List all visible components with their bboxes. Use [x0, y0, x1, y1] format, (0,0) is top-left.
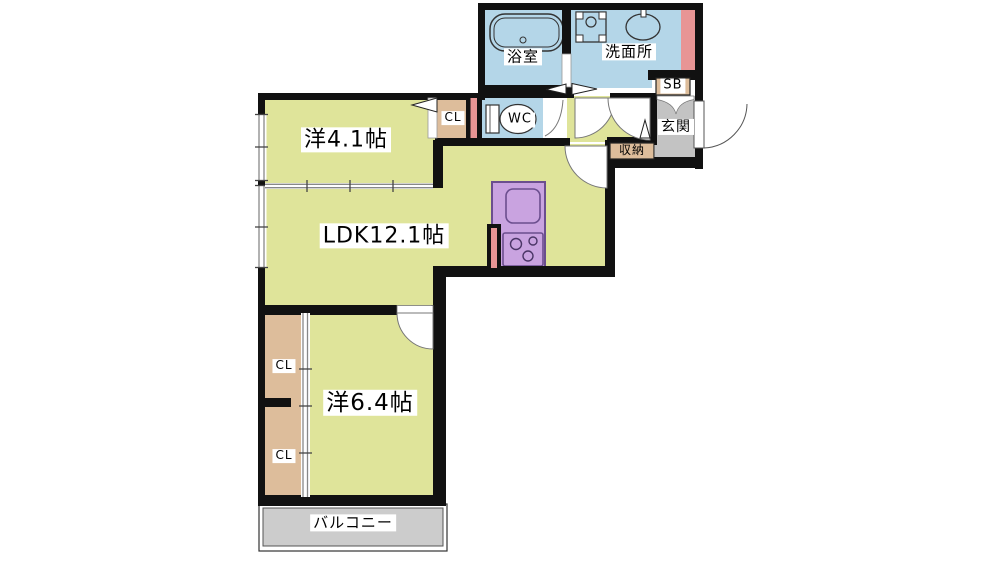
- room-label-storage: 収納: [618, 144, 646, 158]
- wall: [478, 3, 703, 10]
- room-label-closet-upper: CL: [272, 359, 295, 373]
- pipe-space-strip: [681, 8, 696, 78]
- room-label-ldk: LDK12.1帖: [320, 223, 449, 248]
- washer-pan-corner: [576, 35, 583, 42]
- floorplan-drawing: [0, 0, 1000, 562]
- sink-faucet-icon: [641, 9, 646, 17]
- room-label-bedroom2: 洋6.4帖: [323, 390, 417, 416]
- wall: [258, 93, 485, 100]
- wc-door-nook: [543, 96, 567, 140]
- wall: [562, 8, 571, 56]
- bath-door: [562, 54, 571, 87]
- wall: [258, 305, 265, 505]
- wall: [478, 3, 485, 98]
- room-label-bedroom1: 洋4.1帖: [301, 127, 391, 152]
- wall: [435, 138, 570, 146]
- room-label-shoe-box: SB: [660, 79, 685, 94]
- wall: [433, 266, 615, 277]
- entrance-door-leaf: [694, 101, 704, 148]
- room-label-entrance: 玄関: [658, 119, 694, 135]
- room-label-wc: WC: [505, 113, 535, 128]
- bedroom2-door-leaf: [397, 306, 433, 314]
- toilet-tank-icon: [486, 105, 499, 133]
- room-label-washroom: 洗面所: [602, 43, 656, 60]
- room-label-bathroom: 浴室: [504, 48, 542, 65]
- floorplan-canvas: 浴室 洗面所 WC CL SB 玄関 収納 洋4.1帖 LDK12.1帖 洋6.…: [0, 0, 1000, 562]
- washer-pan-corner: [576, 12, 583, 19]
- washer-pan-corner: [599, 35, 606, 42]
- washer-pan-corner: [599, 12, 606, 19]
- wall: [258, 495, 446, 506]
- wall-closet-stub: [265, 398, 291, 407]
- pipe-strip-wc: [471, 98, 478, 138]
- room-label-closet-lower: CL: [272, 449, 295, 463]
- room-label-closet-bedroom1: CL: [441, 111, 464, 125]
- pipe-strip-kitchen: [491, 228, 497, 268]
- room-label-balcony: バルコニー: [310, 514, 396, 531]
- wall: [433, 266, 446, 506]
- wall: [258, 305, 397, 315]
- entrance-door-swing: [704, 104, 747, 148]
- wall: [433, 140, 443, 188]
